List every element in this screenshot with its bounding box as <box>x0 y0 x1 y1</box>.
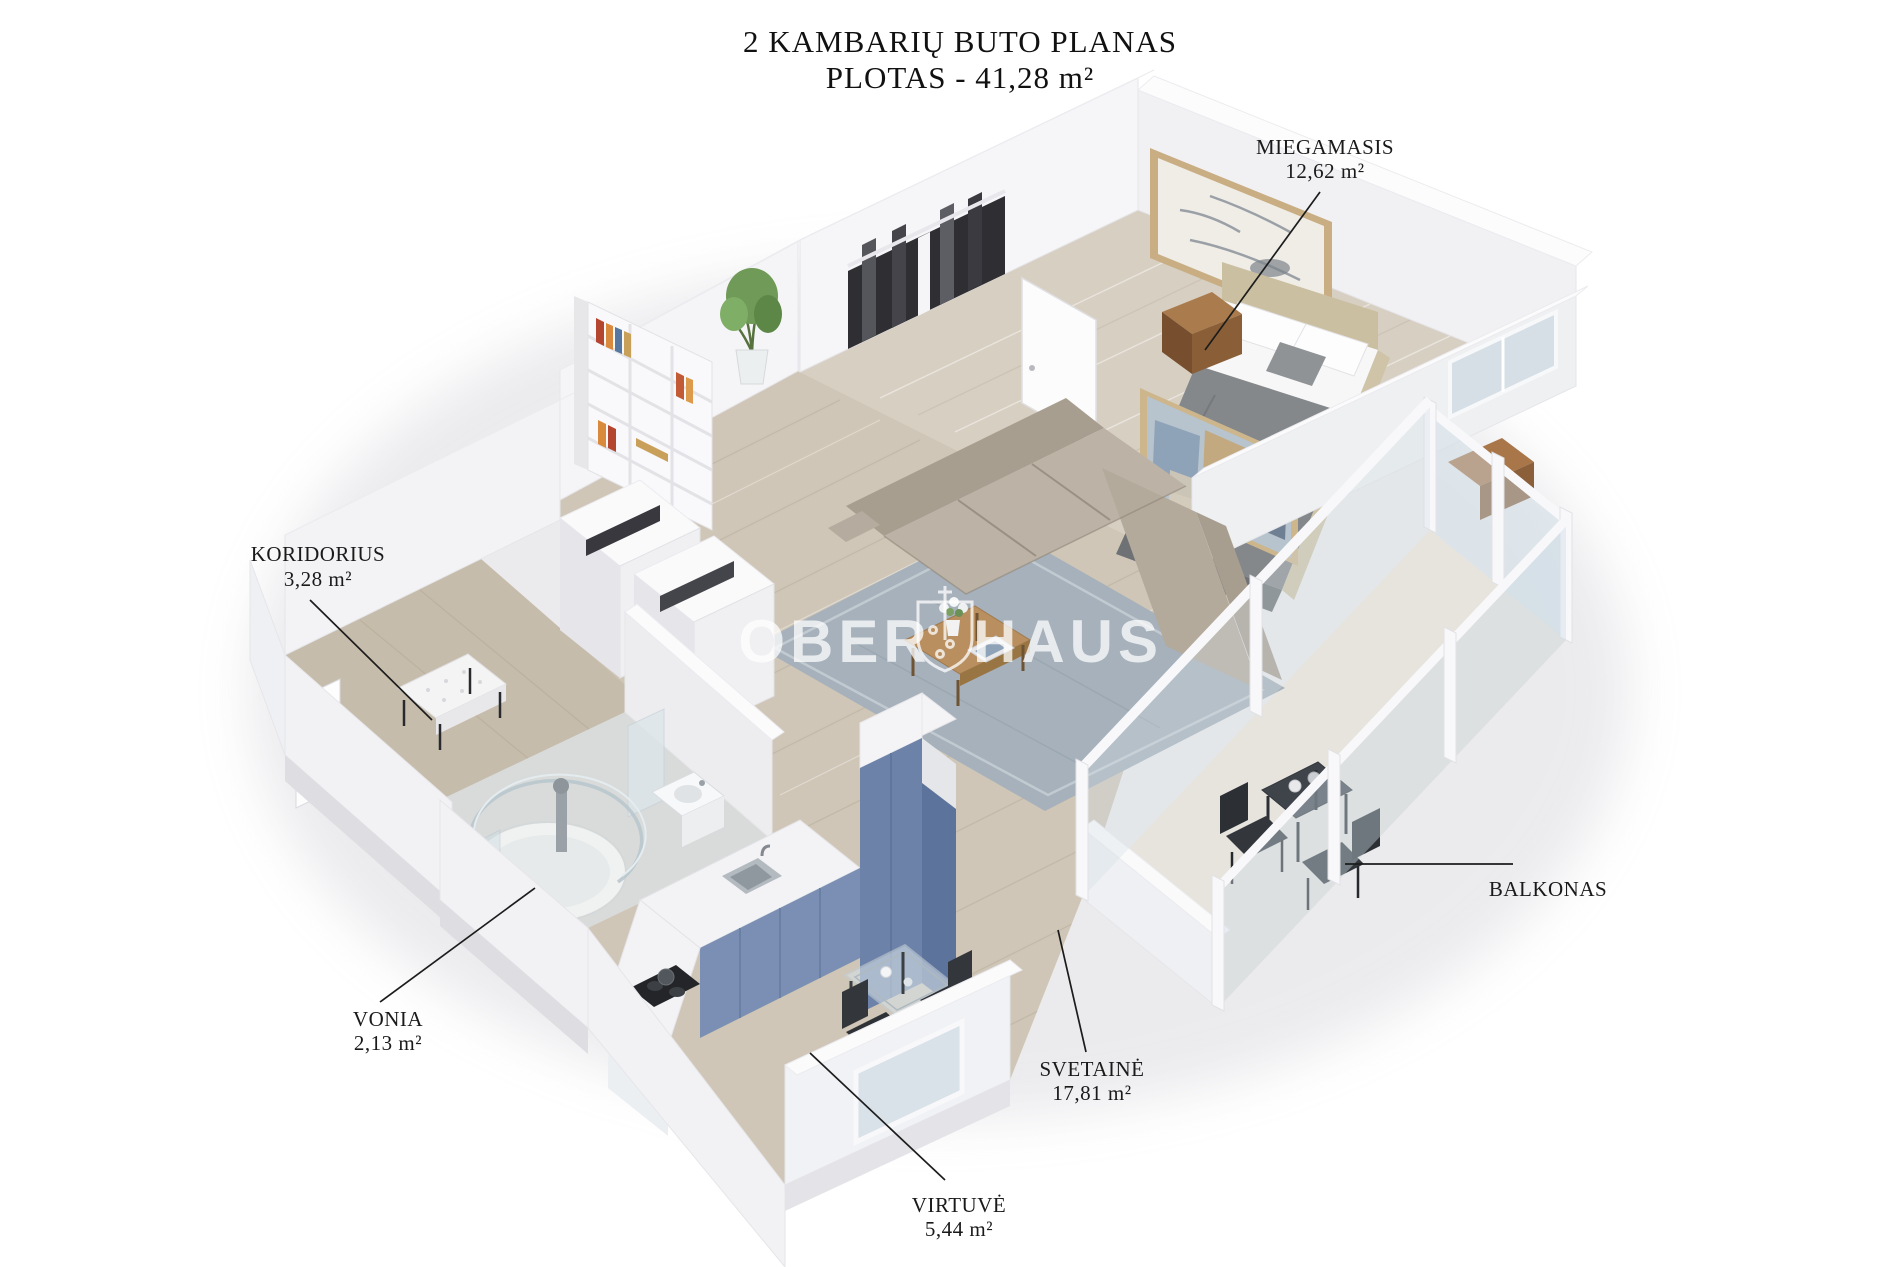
room-name: VONIA <box>353 1007 423 1031</box>
watermark-right-text: HAUS <box>973 608 1163 675</box>
shower-head <box>553 778 569 794</box>
room-area: 5,44 m² <box>925 1217 993 1241</box>
bathroom-door <box>628 709 664 817</box>
room-name: BALKONAS <box>1489 877 1607 901</box>
floor-plan-rendering: OBER HAUS MIEGAMASIS 12,62 m² KORIDORIUS… <box>0 0 1900 1267</box>
cooking-pot <box>658 969 674 985</box>
room-area: 2,13 m² <box>354 1031 422 1055</box>
floor-plan-page: OBER HAUS MIEGAMASIS 12,62 m² KORIDORIUS… <box>0 0 1900 1267</box>
bowl <box>904 978 913 987</box>
label-svetaine: SVETAINĖ 17,81 m² <box>1040 1057 1145 1105</box>
room-name: SVETAINĖ <box>1040 1057 1145 1081</box>
room-area: 3,28 m² <box>284 567 352 591</box>
shower-column <box>556 790 567 852</box>
room-name: MIEGAMASIS <box>1256 135 1394 159</box>
cup <box>1289 780 1301 792</box>
room-area: 17,81 m² <box>1052 1081 1131 1105</box>
title-line-2: PLOTAS - 41,28 m² <box>826 60 1094 95</box>
plan-title: 2 KAMBARIŲ BUTO PLANAS PLOTAS - 41,28 m² <box>743 24 1177 95</box>
label-balkonas: BALKONAS <box>1489 877 1607 901</box>
label-virtuve: VIRTUVĖ 5,44 m² <box>912 1193 1006 1241</box>
room-area: 12,62 m² <box>1285 159 1364 183</box>
cup <box>881 967 892 978</box>
room-name: VIRTUVĖ <box>912 1193 1006 1217</box>
title-line-1: 2 KAMBARIŲ BUTO PLANAS <box>743 24 1177 59</box>
label-vonia: VONIA 2,13 m² <box>353 1007 423 1055</box>
watermark-left-text: OBER <box>738 608 931 675</box>
room-name: KORIDORIUS <box>251 542 386 566</box>
